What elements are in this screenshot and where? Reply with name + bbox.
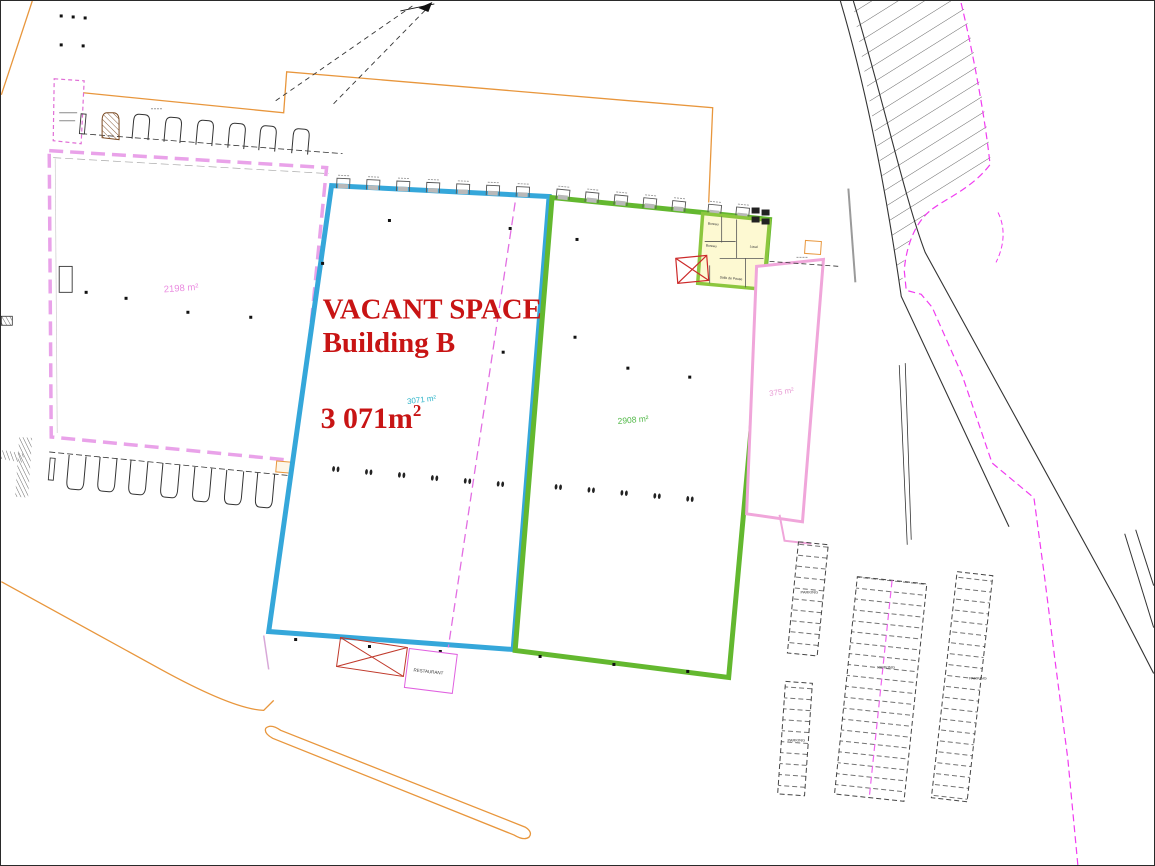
parking-row-4 [931, 572, 992, 802]
road-edge [1125, 534, 1154, 628]
tiny-annotation-marks [59, 113, 77, 121]
parking-label: PARKING [800, 590, 818, 595]
parking-area: PARKING PARKING PARKING PARKING [778, 542, 993, 802]
truck-parking-hatch [852, 1, 991, 296]
small-orange-box [805, 240, 822, 254]
vacant-space-area: 3 071m2 [321, 401, 422, 435]
boundary-segment [1, 582, 273, 711]
hatched-bay [102, 113, 119, 140]
vacant-space-title-line1: VACANT SPACE - [323, 293, 559, 325]
dimension-arrow [276, 2, 435, 104]
building-a-pink: 2198 m² [49, 151, 328, 461]
gray-wall-line [848, 189, 855, 283]
parking-label: PARKING [969, 675, 987, 680]
site-plan-canvas: 2198 m² VACANT SPACE - Building B 3 071m… [0, 0, 1155, 866]
parking-label: PARKING [788, 737, 806, 742]
building-a-outline [49, 151, 326, 461]
parking-row-1 [787, 542, 828, 656]
vacant-space-title-line2: Building B [323, 327, 456, 359]
parking-label: PARKING [877, 664, 895, 669]
side-strip-375: 375 m² [747, 189, 912, 545]
boundary-magenta-dashed [996, 213, 1003, 263]
hatched-strip [15, 437, 32, 498]
traffic-island [265, 726, 530, 838]
thin-wedge [899, 363, 911, 545]
parking-row-3 [835, 577, 927, 802]
room-label: Local [750, 244, 759, 249]
boundary-segment [1, 1, 32, 95]
edge-mark [1, 316, 12, 325]
